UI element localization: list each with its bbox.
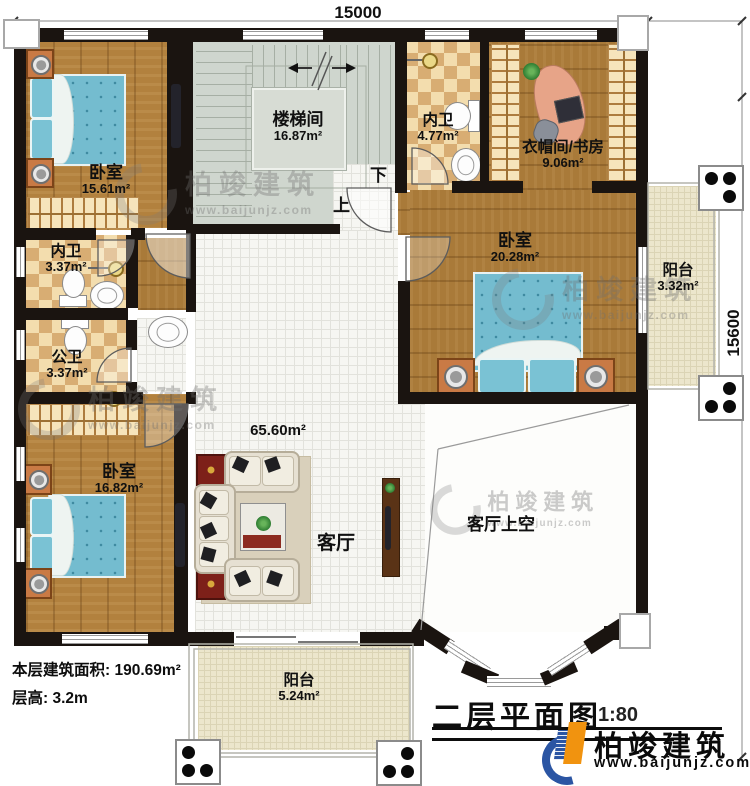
pilaster [619,613,651,649]
room-name: 卧室 [82,163,130,182]
room-label-cloak-study: 衣帽间/书房 9.06m² [522,139,604,171]
room-label-balcony-bottom: 阳台 5.24m² [278,672,319,704]
room-area: 15.61m² [82,182,130,197]
room-area: 9.06m² [522,156,604,171]
floor-area-text: 本层建筑面积: 190.69m² [12,658,181,680]
room-name: 客厅上空 [467,515,535,534]
room-area: 3.32m² [657,279,698,294]
room-area: 16.82m² [95,481,143,496]
room-label-bedroom-bottom-left: 卧室 16.82m² [95,462,143,496]
dimension-top: 15000 [334,3,381,23]
column-marker [698,375,744,421]
column-marker [698,165,744,211]
brand-url: www.baijunjz.com [594,755,750,771]
room-name: 楼梯间 [273,110,324,129]
stair-break-icon [288,52,356,90]
floor-height-value: 3.2m [52,690,87,707]
balcony-railings [189,183,719,757]
room-name: 阳台 [278,672,319,689]
room-label-stairwell: 楼梯间 16.87m² [273,110,324,144]
living-name-label: 客厅 [317,533,355,554]
floor-plan: 柏竣建筑 www.baijunjz.com 柏竣建筑 www.baijunjz.… [0,0,750,786]
room-label-bath-top: 内卫 4.77m² [417,112,458,144]
room-area: 3.37m² [45,260,86,275]
room-area: 4.77m² [417,129,458,144]
room-name: 阳台 [657,262,698,279]
living-area-label: 65.60m² [250,423,306,440]
room-name: 卧室 [491,231,539,250]
room-area: 20.28m² [491,250,539,265]
floor-area-label: 本层建筑面积: [12,662,110,679]
room-name: 衣帽间/书房 [522,139,604,156]
room-label-living-void: 客厅上空 [467,515,535,534]
floor-height-text: 层高: 3.2m [12,686,88,708]
column-marker [175,739,221,785]
dimension-right: 15600 [724,309,744,356]
room-area: 16.87m² [273,129,324,144]
room-label-bedroom-right: 卧室 20.28m² [491,231,539,265]
room-label-bath-mid: 内卫 3.37m² [45,243,86,275]
room-name: 内卫 [45,243,86,260]
room-name: 客厅 [317,533,355,554]
pilaster [617,15,649,51]
room-area: 5.24m² [278,689,319,704]
room-area: 65.60m² [250,423,306,440]
room-name: 公卫 [46,349,87,366]
floor-height-label: 层高: [12,690,48,707]
column-marker [376,740,422,786]
floor-area-value: 190.69m² [114,662,180,679]
stair-down-label: 下 [370,161,387,186]
room-label-bedroom-top-left: 卧室 15.61m² [82,163,130,197]
room-label-bath-public: 公卫 3.37m² [46,349,87,381]
pilaster [3,19,40,49]
room-area: 3.37m² [46,366,87,381]
door-arcs [97,148,450,447]
room-name: 卧室 [95,462,143,481]
room-name: 内卫 [417,112,458,129]
room-label-balcony-right: 阳台 3.32m² [657,262,698,294]
stair-up-label: 上 [333,191,350,216]
